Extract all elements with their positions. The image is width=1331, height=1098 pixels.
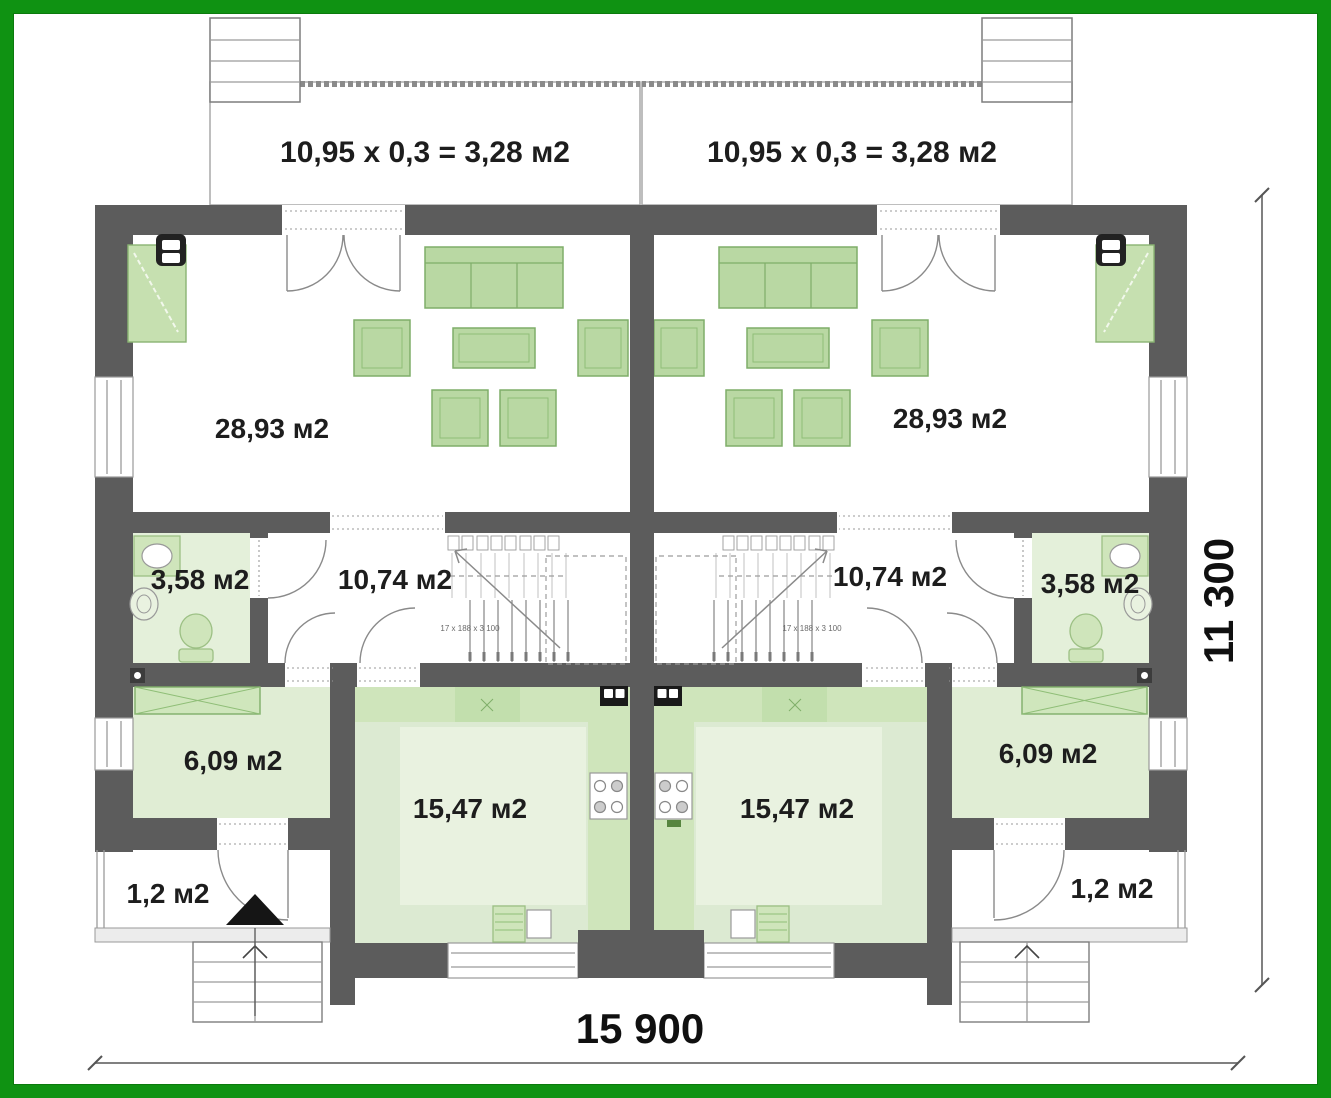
party-wall xyxy=(630,205,654,943)
kitchen-label-right: 15,47 м2 xyxy=(740,793,854,824)
bedroom-label-left: 6,09 м2 xyxy=(184,745,283,776)
stair-note-left: 17 x 188 x 3 100 xyxy=(440,624,500,633)
hall-label-left: 10,74 м2 xyxy=(338,564,452,595)
kitchen-label-left: 15,47 м2 xyxy=(413,793,527,824)
bath-label-right: 3,58 м2 xyxy=(1041,568,1140,599)
party-wall-pier xyxy=(578,930,704,978)
bedroom-label-right: 6,09 м2 xyxy=(999,738,1098,769)
hall-label-right: 10,74 м2 xyxy=(833,561,947,592)
living-label-left: 28,93 м2 xyxy=(215,413,329,444)
entry-label-left: 1,2 м2 xyxy=(127,878,210,909)
terrace-label-left: 10,95 x 0,3 = 3,28 м2 xyxy=(280,136,570,169)
counter-handle-mark xyxy=(667,820,681,827)
dimension-depth-label: 11 300 xyxy=(1195,538,1242,664)
stair-note-right: 17 x 188 x 3 100 xyxy=(782,624,842,633)
living-label-right: 28,93 м2 xyxy=(893,403,1007,434)
entry-label-right: 1,2 м2 xyxy=(1071,873,1154,904)
bath-label-left: 3,58 м2 xyxy=(151,564,250,595)
terrace-label-right: 10,95 x 0,3 = 3,28 м2 xyxy=(707,136,997,169)
floor-plan-page: 15 900 11 300 10,95 x 0,3 = 3,28 м2 10,9… xyxy=(0,0,1331,1098)
floor-plan-canvas: 15 900 11 300 10,95 x 0,3 = 3,28 м2 10,9… xyxy=(0,0,1331,1098)
dimension-width-label: 15 900 xyxy=(576,1005,704,1052)
